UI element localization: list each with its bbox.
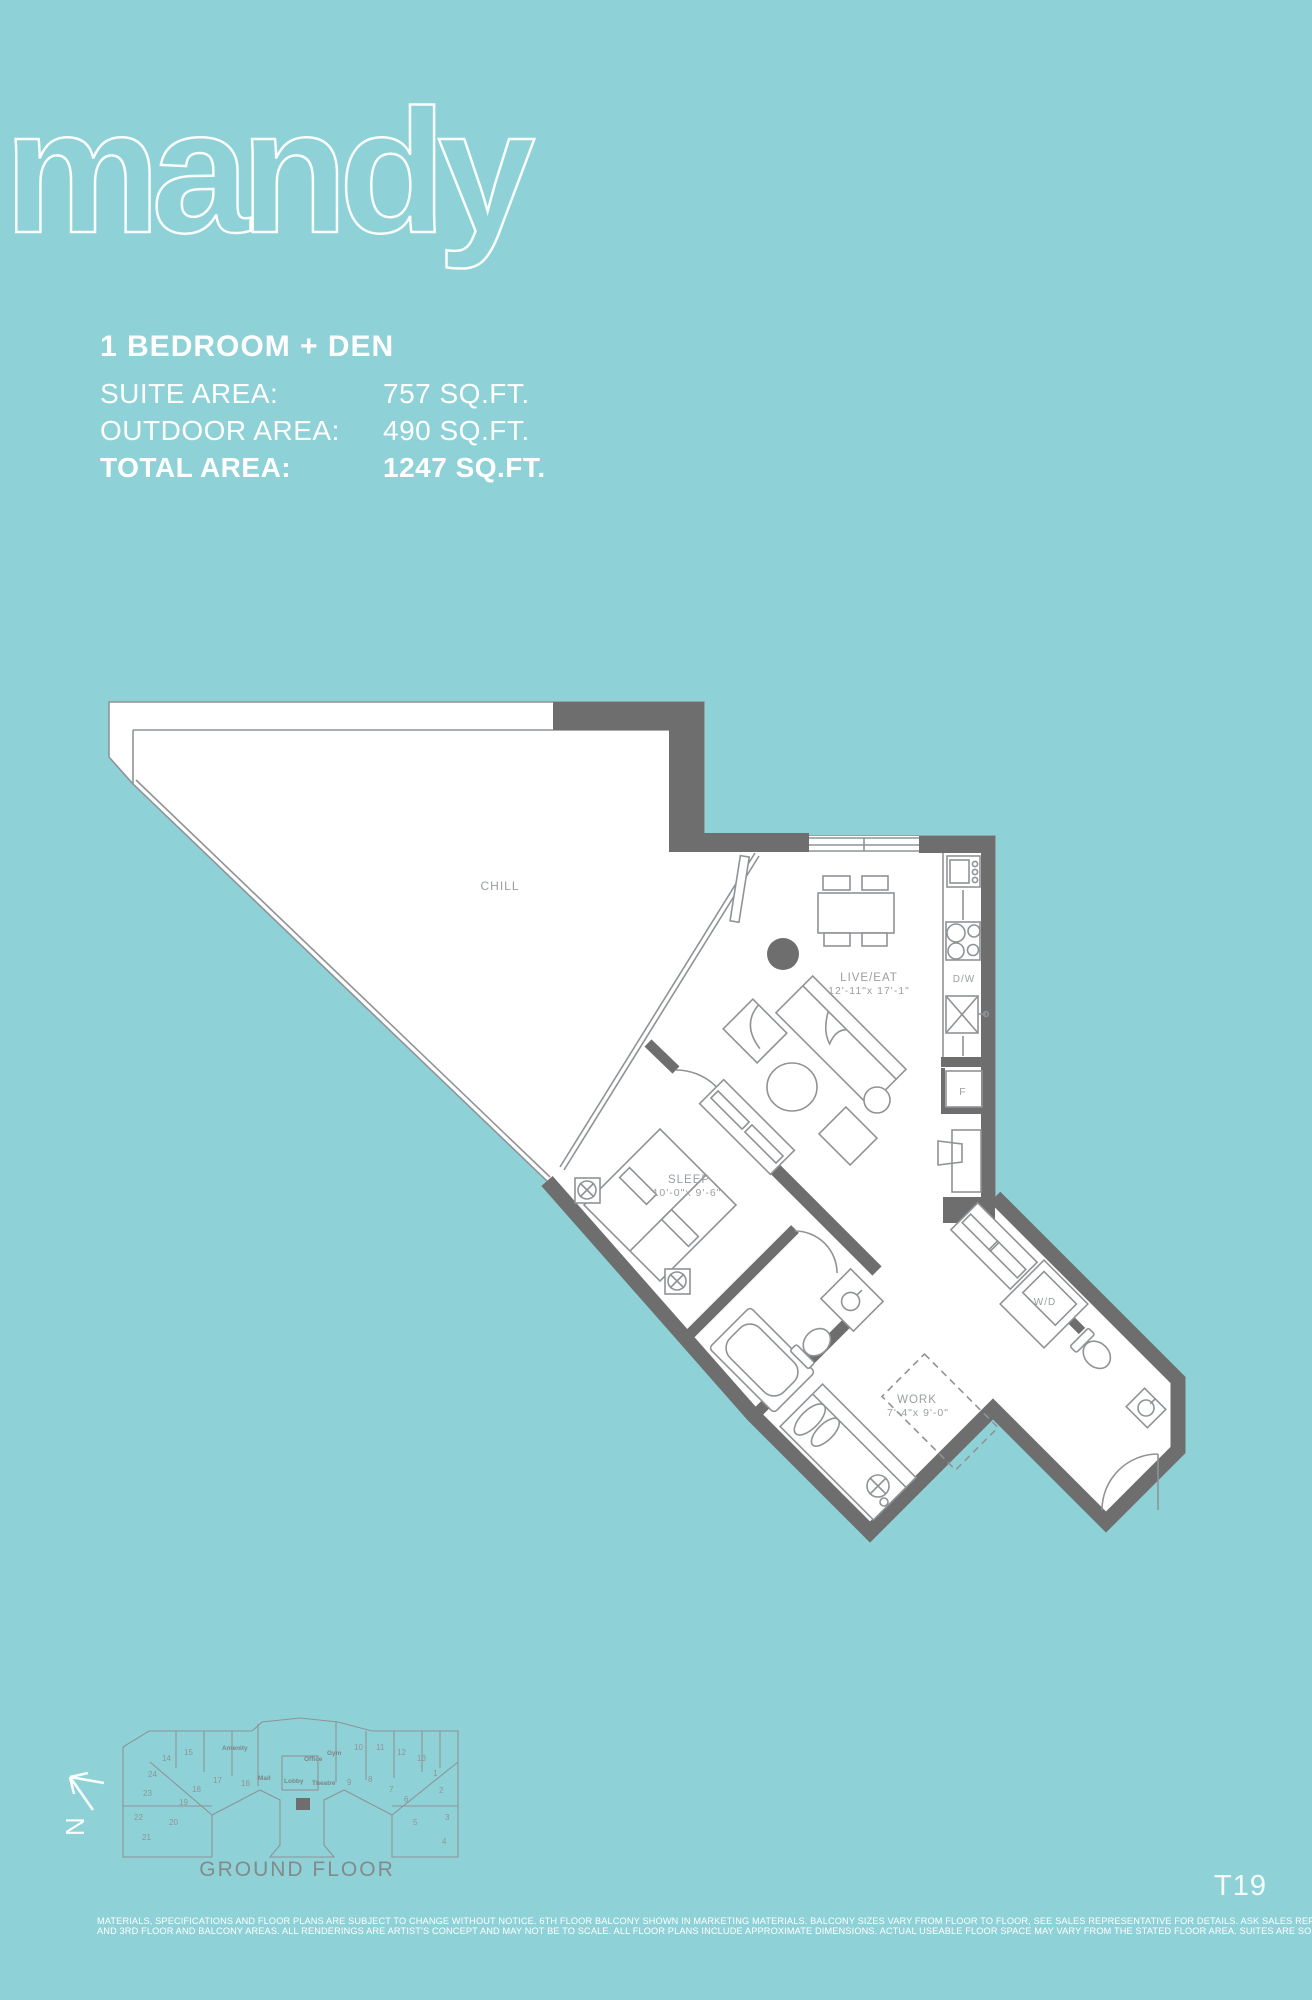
key-unit-17: 17 bbox=[213, 1776, 222, 1785]
key-label-amenity: Amenity bbox=[222, 1745, 248, 1752]
sheet-code: T19 bbox=[1214, 1870, 1267, 1903]
key-label-gym: Gym bbox=[327, 1750, 342, 1757]
north-arrow-icon bbox=[70, 1773, 104, 1810]
ceiling-light-icon-2 bbox=[665, 1269, 690, 1294]
key-unit-14: 14 bbox=[162, 1754, 171, 1763]
key-unit-23: 23 bbox=[143, 1789, 152, 1798]
live-eat-dims: 12'-11"x 17'-1" bbox=[828, 985, 910, 997]
disclaimer-line-1: MATERIALS, SPECIFICATIONS AND FLOOR PLAN… bbox=[97, 1916, 1312, 1926]
unit-outline bbox=[109, 702, 1178, 1532]
key-unit-18: 18 bbox=[192, 1785, 201, 1794]
side-table bbox=[864, 1087, 890, 1113]
key-unit-4: 4 bbox=[442, 1837, 447, 1846]
key-unit-16: 16 bbox=[241, 1779, 250, 1788]
key-unit-2: 2 bbox=[439, 1786, 444, 1795]
work-dims: 7'-4"x 9'-0" bbox=[887, 1407, 949, 1419]
dishwasher-label: D/W bbox=[953, 974, 975, 985]
floor-plan-drawing: CHILL LIVE/EAT 12'-11"x 17'-1" SLEEP 10'… bbox=[0, 0, 1312, 2000]
key-unit-24: 24 bbox=[148, 1770, 157, 1779]
key-plan-unit-numbers: 1 2 3 4 5 6 7 8 9 10 11 12 13 14 15 16 1… bbox=[134, 1743, 450, 1846]
key-unit-11: 11 bbox=[376, 1743, 385, 1752]
key-unit-19: 19 bbox=[179, 1798, 188, 1807]
key-plan-suite-marker bbox=[296, 1798, 310, 1810]
key-unit-5: 5 bbox=[413, 1818, 418, 1827]
key-unit-7: 7 bbox=[389, 1785, 394, 1794]
coffee-table bbox=[767, 1063, 817, 1111]
live-eat-label: LIVE/EAT bbox=[840, 972, 898, 984]
floor-plan-sheet: { "page": {"background_color": "#8ED2D8"… bbox=[0, 0, 1312, 2000]
ground-floor-caption: GROUND FLOOR bbox=[199, 1858, 395, 1881]
key-plan: 1 2 3 4 5 6 7 8 9 10 11 12 13 14 15 16 1… bbox=[123, 1718, 458, 1857]
key-label-mail: Mail bbox=[258, 1775, 271, 1782]
sleep-dims: 10'-0"x 9'-6" bbox=[653, 1187, 722, 1199]
key-unit-22: 22 bbox=[134, 1813, 143, 1822]
key-label-office: Office bbox=[304, 1756, 323, 1763]
ceiling-light-icon bbox=[575, 1178, 600, 1203]
structural-column bbox=[767, 938, 799, 970]
key-unit-13: 13 bbox=[417, 1754, 426, 1763]
kitchen-window bbox=[809, 836, 919, 852]
key-label-lobby: Lobby bbox=[284, 1778, 304, 1785]
sleep-label: SLEEP bbox=[668, 1174, 710, 1186]
disclaimer-line-2: AND 3RD FLOOR AND BALCONY AREAS. ALL REN… bbox=[97, 1926, 1312, 1936]
washer-dryer-label: W/D bbox=[1034, 1297, 1056, 1308]
key-unit-6: 6 bbox=[404, 1795, 409, 1804]
key-unit-15: 15 bbox=[184, 1748, 193, 1757]
key-unit-3: 3 bbox=[445, 1813, 450, 1822]
key-unit-10: 10 bbox=[354, 1743, 363, 1752]
key-unit-12: 12 bbox=[397, 1748, 406, 1757]
key-unit-20: 20 bbox=[169, 1818, 178, 1827]
key-unit-8: 8 bbox=[368, 1775, 373, 1784]
terrace-label: CHILL bbox=[480, 879, 519, 893]
key-label-theatre: Theatre bbox=[312, 1780, 336, 1787]
north-label: N bbox=[60, 1817, 90, 1836]
key-unit-21: 21 bbox=[142, 1833, 151, 1842]
fridge-label: F bbox=[959, 1086, 966, 1098]
work-label: WORK bbox=[897, 1394, 937, 1406]
key-unit-9: 9 bbox=[347, 1778, 352, 1787]
key-unit-1: 1 bbox=[433, 1769, 438, 1778]
